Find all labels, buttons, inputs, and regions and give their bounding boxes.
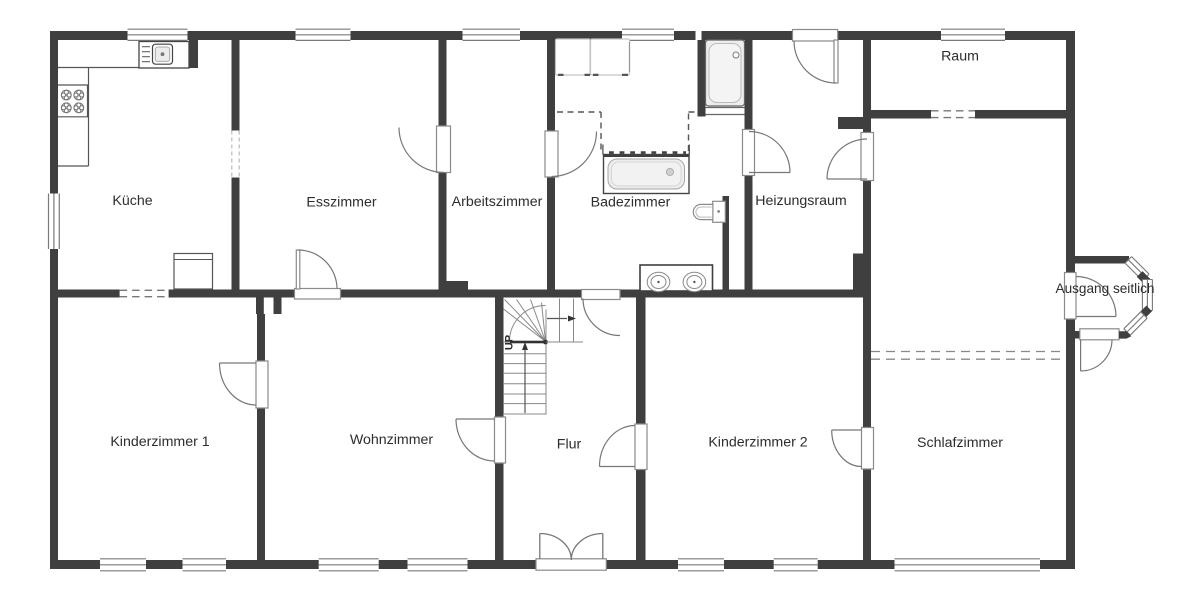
svg-text:Badezimmer: Badezimmer <box>591 195 671 211</box>
svg-text:Ausgang seitlich: Ausgang seitlich <box>1056 281 1155 296</box>
svg-text:UP: UP <box>504 335 516 350</box>
svg-text:Arbeitszimmer: Arbeitszimmer <box>452 194 543 210</box>
svg-text:Küche: Küche <box>112 193 152 209</box>
svg-text:Wohnzimmer: Wohnzimmer <box>350 432 434 448</box>
svg-text:Kinderzimmer 1: Kinderzimmer 1 <box>110 434 209 450</box>
svg-text:Kinderzimmer 2: Kinderzimmer 2 <box>708 435 807 451</box>
svg-text:Esszimmer: Esszimmer <box>306 195 376 211</box>
svg-text:Raum: Raum <box>941 49 979 65</box>
svg-text:Heizungsraum: Heizungsraum <box>755 193 846 209</box>
svg-text:Schlafzimmer: Schlafzimmer <box>917 435 1003 451</box>
svg-text:Flur: Flur <box>557 437 582 453</box>
